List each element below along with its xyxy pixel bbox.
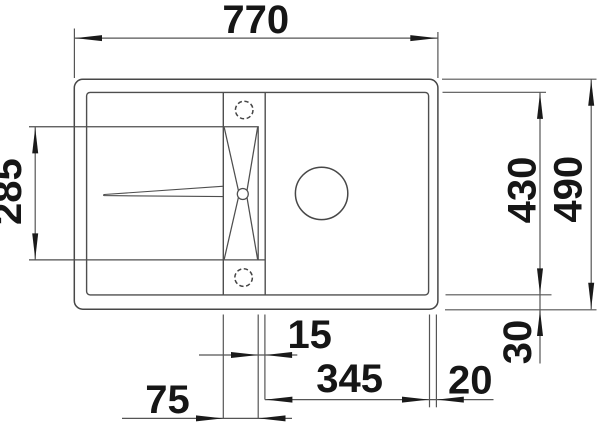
svg-text:345: 345 xyxy=(316,357,383,401)
svg-text:430: 430 xyxy=(501,157,545,224)
svg-text:30: 30 xyxy=(496,320,540,365)
svg-text:15: 15 xyxy=(287,313,332,357)
svg-text:770: 770 xyxy=(222,0,289,42)
svg-text:285: 285 xyxy=(0,158,30,225)
svg-text:75: 75 xyxy=(145,378,190,422)
svg-text:20: 20 xyxy=(448,359,493,403)
svg-text:490: 490 xyxy=(547,156,591,223)
